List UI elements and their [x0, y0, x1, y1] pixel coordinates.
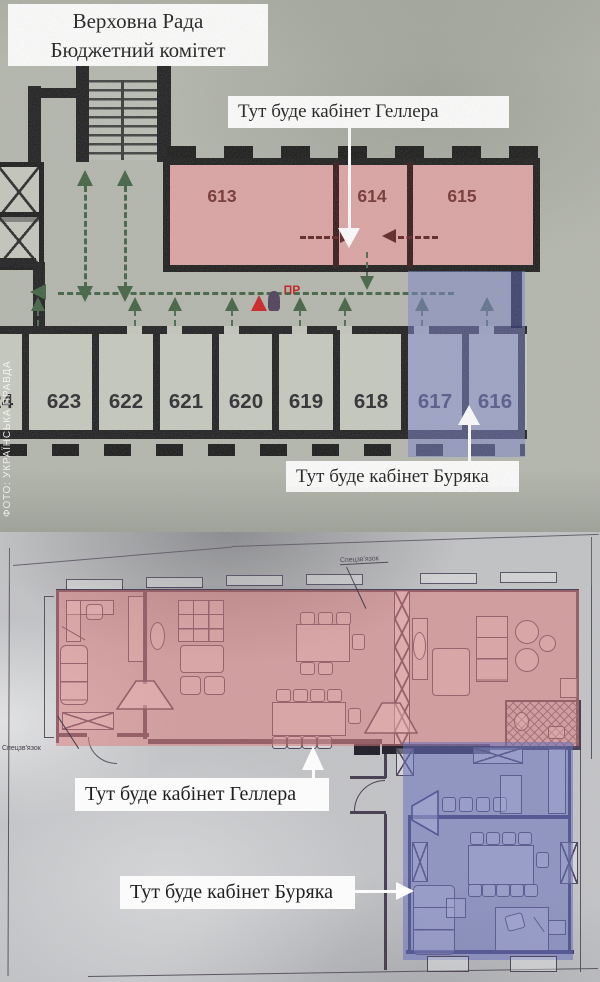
room-divider	[272, 330, 279, 430]
up-arrow-icon	[117, 170, 133, 186]
stairs-divider	[121, 80, 124, 160]
up-arrow-icon	[31, 297, 45, 311]
wall	[350, 776, 386, 779]
wall	[0, 258, 36, 267]
fire-point-icon	[251, 295, 267, 311]
room-number-618: 618	[349, 390, 393, 414]
room-divider	[212, 330, 219, 430]
callout-arrow-line	[348, 128, 351, 230]
room-number-613: 613	[197, 186, 247, 207]
buryak-zone-highlight	[403, 742, 573, 960]
fire-point-label: ПР	[280, 283, 304, 297]
sheet-border	[232, 534, 599, 547]
buryak-zone-highlight	[408, 271, 525, 457]
callout-arrow-line	[468, 424, 471, 461]
window-sill	[146, 577, 203, 588]
wall	[384, 754, 387, 778]
route-dash	[398, 236, 438, 239]
up-arrow-icon	[293, 297, 307, 311]
down-arrow-icon	[360, 276, 374, 290]
wall	[350, 811, 386, 814]
room-number-619: 619	[284, 390, 328, 414]
room-divider	[333, 162, 339, 268]
route-dash	[300, 236, 338, 239]
geller-callout: Тут буде кабінет Геллера	[228, 96, 509, 128]
photo-title: Верховна Рада Бюджетний комітет	[8, 4, 268, 66]
window-hatching	[167, 146, 538, 158]
up-arrow-icon	[77, 170, 93, 186]
geller-callout: Тут буде кабінет Геллера	[75, 778, 329, 811]
extinguisher-icon	[268, 291, 280, 311]
note-spetszviazok-left: Спецзв'язок	[2, 745, 50, 752]
room-number-623: 623	[42, 390, 86, 414]
up-arrow-icon	[302, 746, 324, 770]
up-arrow-icon	[168, 297, 182, 311]
geller-zone-highlight	[56, 590, 579, 746]
architectural-plan-photo: Спецзв'язок Спецзв'язок Тут буде кабінет…	[0, 532, 600, 982]
room-divider	[333, 330, 340, 430]
left-arrow-icon	[382, 229, 396, 243]
sheet-border	[8, 548, 10, 976]
room-number-615: 615	[437, 186, 487, 207]
door-gap	[224, 326, 239, 334]
up-arrow-icon	[128, 297, 142, 311]
room-divider	[22, 330, 29, 430]
geller-rooms-block	[163, 158, 540, 272]
room-divider	[153, 330, 160, 430]
room-number-621: 621	[164, 390, 208, 414]
note-spetszviazok-top: Спецзв'язок	[340, 555, 388, 566]
room-divider	[92, 330, 99, 430]
door-gap	[167, 326, 182, 334]
sheet-border	[580, 746, 581, 972]
screenshot: 613 614 615 ПР	[0, 0, 600, 982]
watermark: ФОТО: УКРАЇНСЬКА ПРАВДА	[2, 327, 16, 517]
sheet-border	[13, 547, 232, 566]
wall	[41, 88, 78, 98]
down-arrow-icon	[338, 228, 360, 248]
dimension-bracket	[44, 596, 54, 738]
window-sill	[420, 573, 477, 584]
room-number-620: 620	[224, 390, 268, 414]
wall	[28, 86, 41, 166]
room-number-622: 622	[104, 390, 148, 414]
title-line-1: Верховна Рада	[8, 7, 268, 36]
route-dash	[84, 186, 87, 288]
window-sill	[427, 956, 469, 972]
title-line-2: Бюджетний комітет	[8, 36, 268, 65]
wall	[511, 271, 522, 328]
buryak-callout: Тут буде кабінет Буряка	[286, 461, 519, 492]
callout-arrow-line	[355, 890, 397, 893]
window-sill	[226, 575, 283, 586]
stairwell-wall	[76, 58, 89, 162]
window-sill	[510, 956, 557, 972]
door-gap	[292, 326, 307, 334]
up-arrow-icon	[458, 405, 480, 425]
up-arrow-icon	[338, 297, 352, 311]
route-dash	[124, 186, 127, 288]
route-dash	[366, 252, 368, 278]
room-divider	[407, 162, 413, 268]
window-sill	[500, 572, 557, 583]
room-number-614: 614	[347, 186, 397, 207]
evacuation-plan-photo: 613 614 615 ПР	[0, 0, 600, 532]
up-arrow-icon	[225, 297, 239, 311]
door-gap	[127, 326, 142, 334]
buryak-callout: Тут буде кабінет Буряка	[120, 876, 355, 909]
room-divider	[401, 330, 408, 430]
sheet-border	[591, 537, 592, 759]
door-arc	[354, 780, 385, 811]
callout-arrow-line	[312, 768, 315, 778]
right-arrow-icon	[396, 882, 414, 900]
